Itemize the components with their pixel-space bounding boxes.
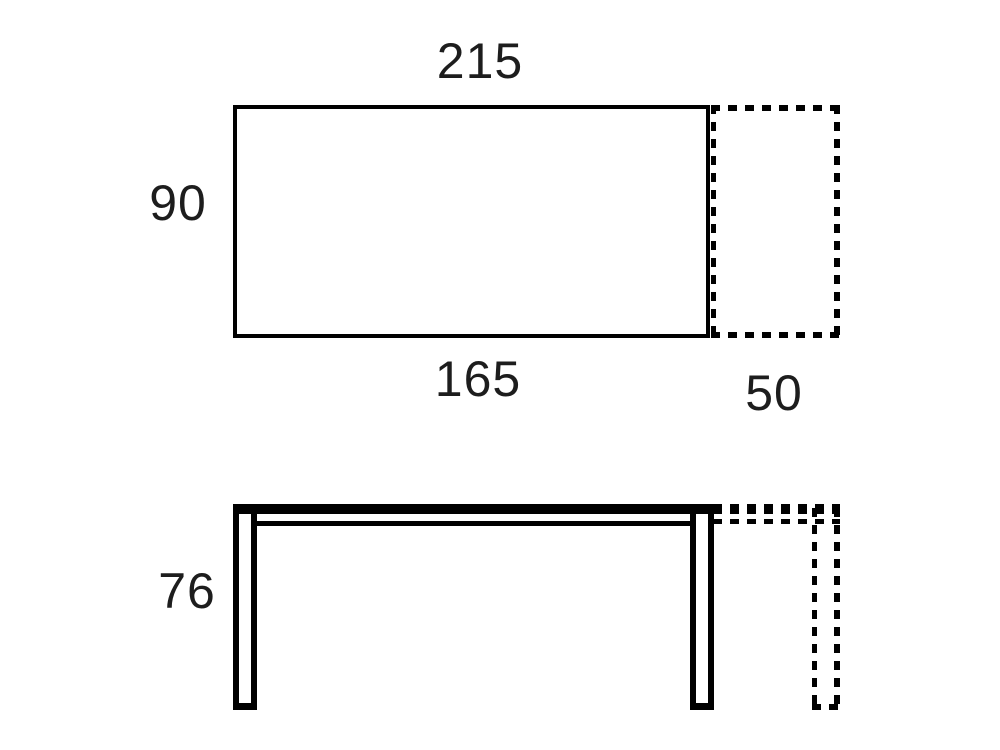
tabletop-side-bar	[233, 504, 713, 514]
apron-underside-line	[251, 521, 693, 526]
extension-plan-dashed-left-edge	[711, 105, 716, 338]
table-dimensions-diagram: 215 90 165 50 76	[0, 0, 1000, 750]
extension-leg-dashed-foot	[812, 704, 840, 710]
tabletop-plan-outline	[233, 105, 710, 338]
extension-side-dashed-apron	[713, 519, 840, 524]
dimension-extension-label: 50	[745, 368, 803, 418]
extension-leg-dashed-inner-line	[812, 508, 817, 704]
dimension-height-label: 76	[158, 566, 216, 616]
extension-side-dashed-tabletop	[713, 504, 840, 514]
left-leg-outline	[233, 514, 257, 710]
extension-leg-dashed-outer-line	[834, 508, 840, 704]
extension-plan-dashed-right-edge	[834, 105, 840, 338]
right-leg-outline	[690, 514, 714, 710]
dimension-total-length-label: 215	[437, 36, 523, 86]
extension-plan-dashed-bottom-edge	[711, 332, 840, 338]
extension-plan-dashed-top-edge	[711, 105, 840, 111]
dimension-closed-length-label: 165	[435, 354, 521, 404]
dimension-depth-label: 90	[149, 178, 207, 228]
